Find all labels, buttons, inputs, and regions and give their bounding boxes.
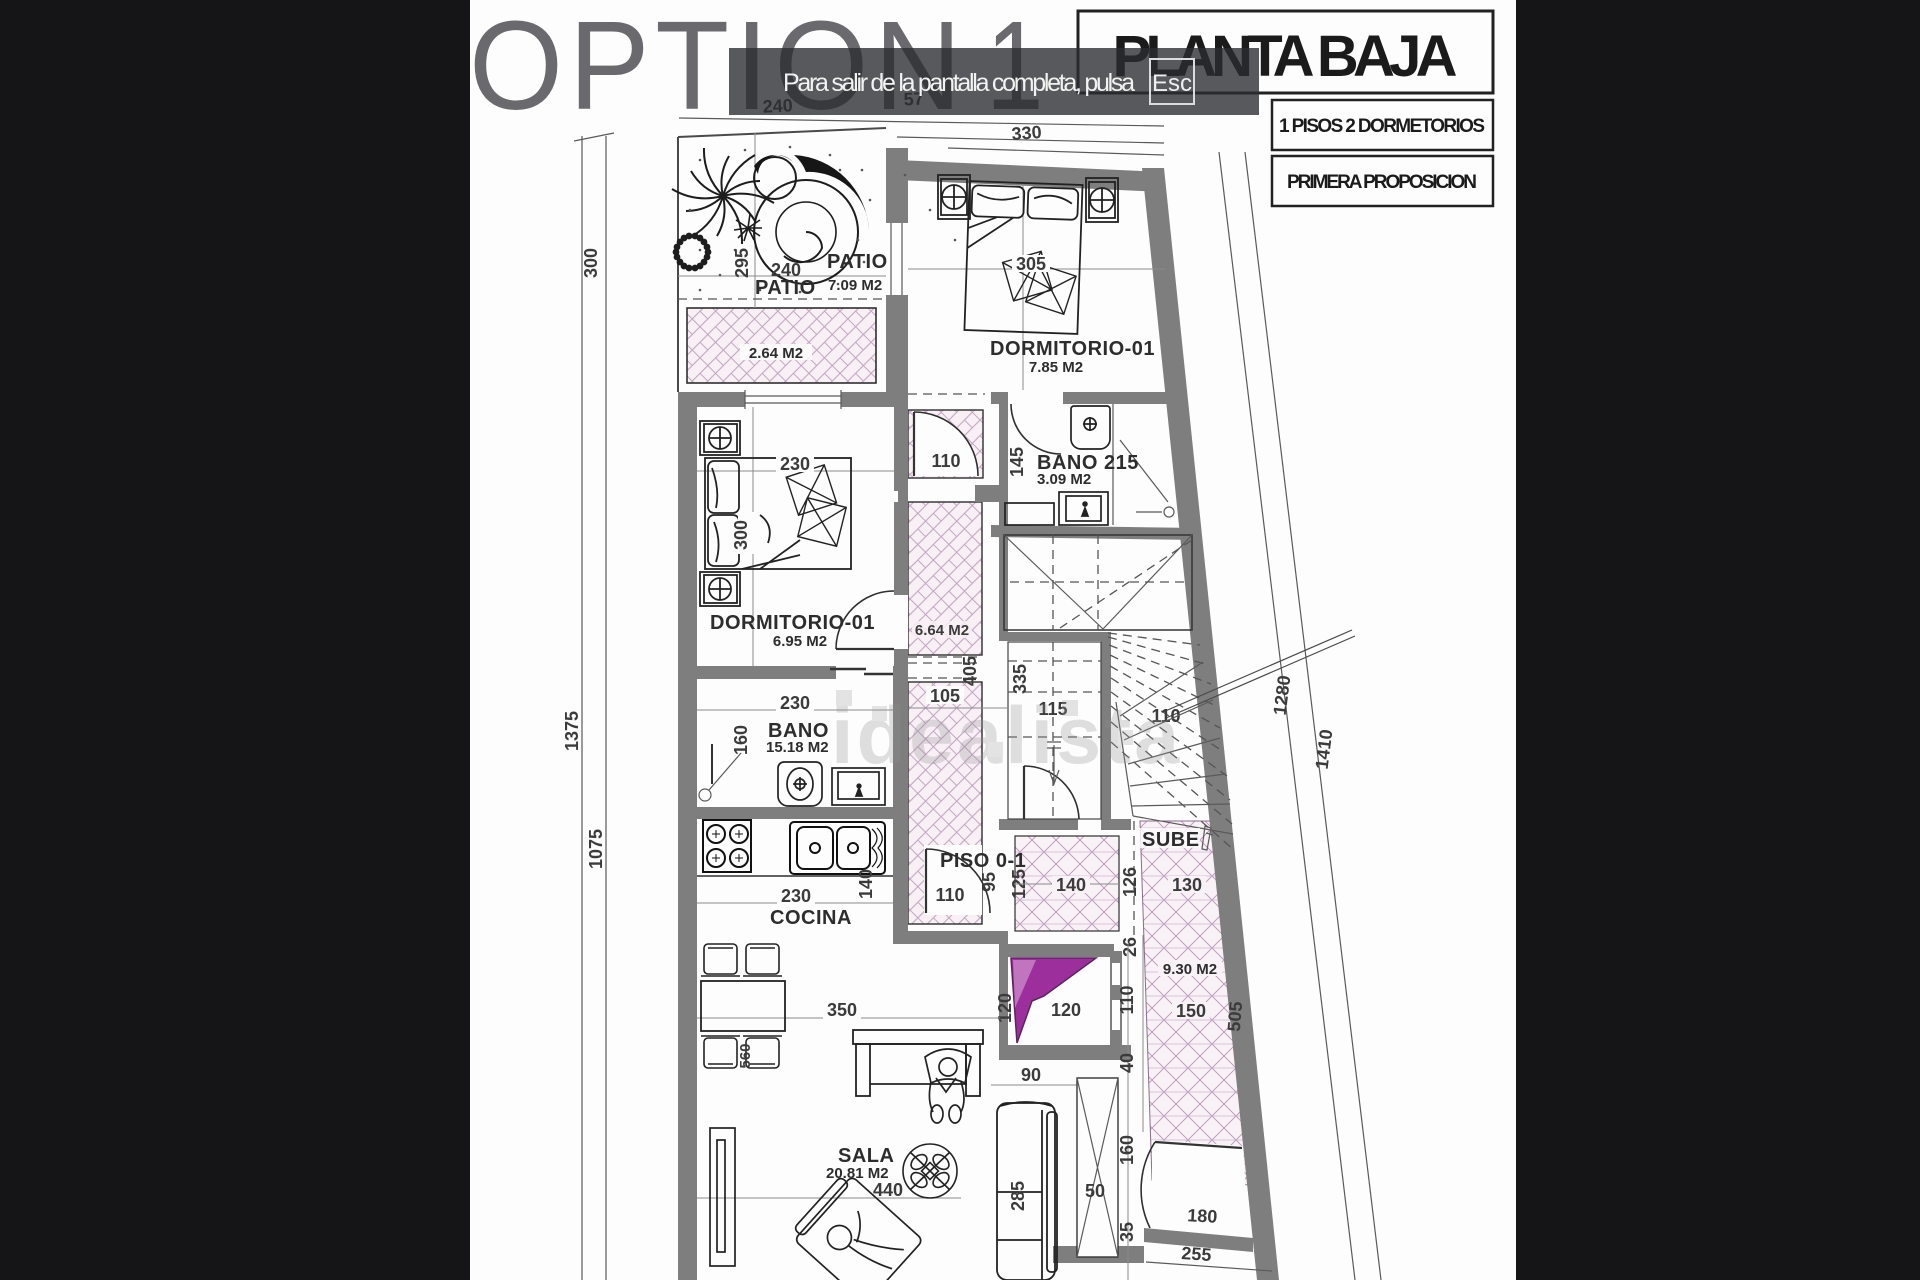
svg-text:1075: 1075: [586, 829, 606, 869]
svg-text:230: 230: [780, 693, 810, 713]
svg-text:Esc: Esc: [1152, 70, 1192, 97]
svg-text:95: 95: [979, 872, 999, 892]
svg-text:335: 335: [1010, 664, 1030, 694]
svg-text:7.85 M2: 7.85 M2: [1029, 359, 1083, 376]
svg-text:PATIO: PATIO: [827, 251, 888, 273]
svg-text:Para salir de la pantalla comp: Para salir de la pantalla completa, puls…: [783, 69, 1135, 97]
svg-text:145: 145: [1007, 447, 1027, 477]
svg-text:DORMITORIO-01: DORMITORIO-01: [710, 612, 875, 634]
svg-text:300: 300: [731, 520, 751, 550]
svg-text:PISO 0-1: PISO 0-1: [940, 850, 1026, 872]
svg-text:6.64 M2: 6.64 M2: [915, 622, 969, 639]
svg-text:20.81 M2: 20.81 M2: [826, 1165, 889, 1182]
svg-text:300: 300: [581, 248, 601, 278]
svg-text:2.64 M2: 2.64 M2: [749, 345, 803, 362]
svg-text:PRIMERA PROPOSICION: PRIMERA PROPOSICION: [1287, 172, 1477, 193]
svg-text:120: 120: [1051, 1000, 1081, 1020]
svg-text:110: 110: [1117, 985, 1137, 1014]
svg-text:6.95 M2: 6.95 M2: [773, 633, 827, 650]
svg-text:350: 350: [827, 1000, 857, 1020]
svg-text:140: 140: [1056, 875, 1086, 895]
svg-text:505: 505: [1224, 1001, 1247, 1033]
svg-text:110: 110: [935, 885, 964, 905]
svg-text:DORMITORIO-01: DORMITORIO-01: [990, 338, 1155, 360]
svg-text:1 PISOS 2 DORMETORIOS: 1 PISOS 2 DORMETORIOS: [1279, 116, 1485, 137]
svg-text:9.30 M2: 9.30 M2: [1163, 961, 1217, 978]
svg-text:35: 35: [1117, 1222, 1137, 1242]
svg-text:160: 160: [1117, 1135, 1137, 1165]
svg-text:255: 255: [1181, 1243, 1212, 1265]
svg-text:90: 90: [1021, 1065, 1041, 1085]
svg-text:126: 126: [1120, 867, 1140, 897]
svg-text:7.09 M2: 7.09 M2: [828, 277, 882, 294]
svg-text:26: 26: [1120, 937, 1140, 957]
svg-text:440: 440: [873, 1180, 903, 1200]
svg-text:50: 50: [1085, 1181, 1105, 1201]
svg-text:COCINA: COCINA: [770, 907, 852, 929]
svg-text:405: 405: [960, 656, 980, 686]
svg-text:295: 295: [732, 248, 752, 278]
svg-text:SALA: SALA: [838, 1145, 894, 1167]
svg-text:285: 285: [1008, 1181, 1028, 1211]
svg-text:230: 230: [781, 886, 811, 906]
svg-text:160: 160: [731, 725, 751, 755]
svg-text:150: 150: [1176, 1001, 1206, 1021]
svg-text:15.18 M2: 15.18 M2: [766, 739, 829, 756]
svg-text:130: 130: [1172, 875, 1202, 895]
svg-text:40: 40: [1117, 1053, 1137, 1073]
svg-text:3.09 M2: 3.09 M2: [1037, 471, 1091, 488]
svg-text:PATIO: PATIO: [755, 277, 816, 299]
svg-text:230: 230: [780, 454, 810, 474]
svg-text:180: 180: [1187, 1205, 1218, 1227]
svg-text:110: 110: [931, 451, 960, 471]
svg-text:560: 560: [737, 1043, 754, 1068]
svg-text:1375: 1375: [562, 711, 582, 751]
svg-text:120: 120: [995, 993, 1015, 1023]
svg-text:305: 305: [1016, 254, 1046, 274]
svg-text:140: 140: [856, 869, 876, 899]
svg-text:SUBE: SUBE: [1142, 829, 1200, 851]
